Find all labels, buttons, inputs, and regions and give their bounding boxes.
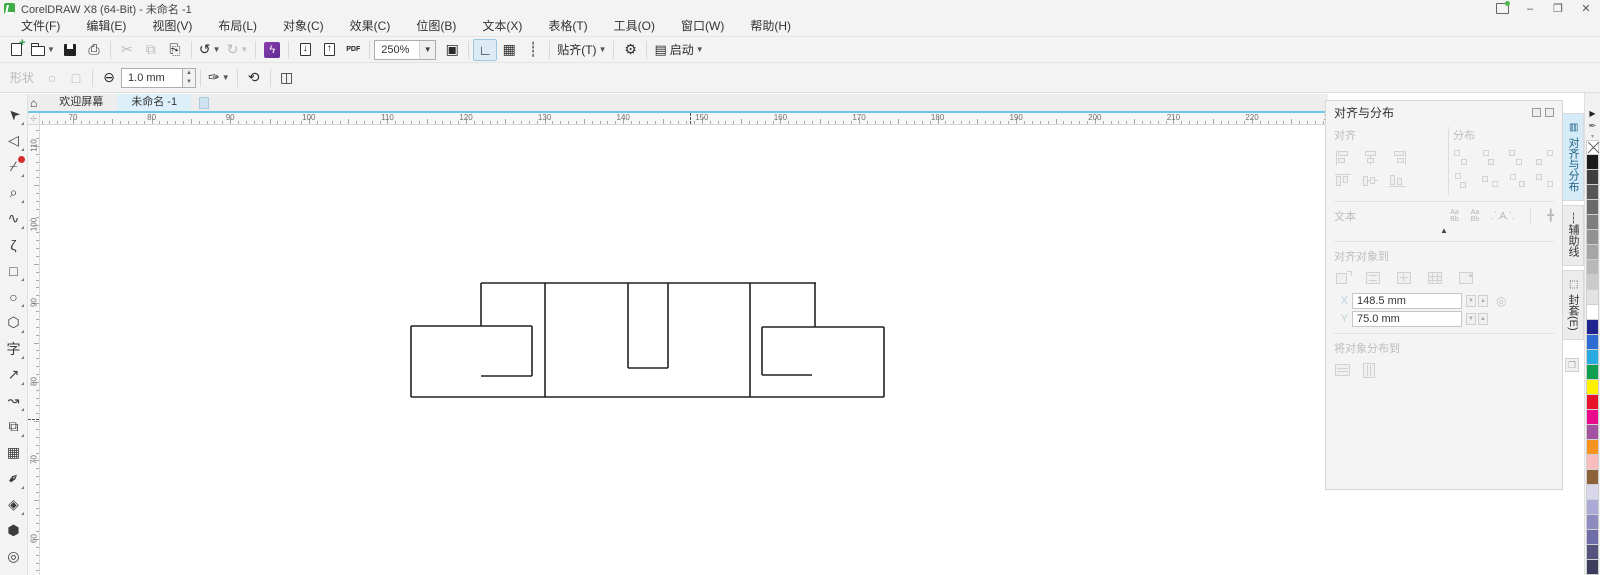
docker-flyout-button[interactable] — [1532, 108, 1541, 117]
align-section-label: 对齐 — [1334, 127, 1444, 143]
align-right-button[interactable] — [1388, 149, 1408, 166]
color-swatch-15[interactable] — [1586, 380, 1599, 395]
color-swatch-19[interactable] — [1586, 440, 1599, 455]
distribute-spacing-v-button[interactable] — [1507, 172, 1527, 189]
distribute-bottom-button[interactable] — [1534, 172, 1554, 189]
v-ruler-number: 80 — [30, 372, 39, 390]
color-swatch-24[interactable] — [1586, 515, 1599, 530]
zoom-level-value: 250% — [375, 44, 419, 56]
paste-button[interactable]: ⎘ — [163, 39, 187, 61]
h-ruler-number: 150 — [695, 113, 708, 122]
redo-button[interactable]: ↻▼ — [224, 39, 252, 61]
window-title: CorelDRAW X8 (64-Bit) - 未命名 -1 — [21, 1, 192, 17]
target-point-icon[interactable]: ◎ — [1496, 294, 1506, 308]
h-ruler-number: 90 — [226, 113, 235, 122]
color-swatch-20[interactable] — [1586, 455, 1599, 470]
menu-item-10[interactable]: 窗口(W) — [668, 17, 737, 36]
rotate-button[interactable]: ⟲ — [242, 67, 266, 89]
color-swatch-26[interactable] — [1586, 545, 1599, 560]
color-swatch-22[interactable] — [1586, 485, 1599, 500]
align-top-button[interactable] — [1334, 172, 1354, 189]
docker-tab-icon: ⬚ — [1568, 279, 1579, 290]
docker-tab-1[interactable]: ┆辅助线 — [1563, 205, 1584, 266]
ellipse-shape-button[interactable]: ○ — [40, 67, 64, 89]
v-ruler-number: 90 — [30, 294, 39, 312]
account-button[interactable] — [1488, 0, 1516, 17]
document-tab-bar: ⌂ 欢迎屏幕 未命名 -1 — [0, 94, 1328, 113]
full-screen-preview-button[interactable]: ▣ — [440, 39, 464, 61]
docker-tab-icon: ┆ — [1570, 212, 1576, 223]
launch-icon: ▤ — [654, 42, 666, 58]
minimize-button[interactable]: – — [1516, 0, 1544, 17]
color-palette: ▶ ✒ ▾ — [1584, 93, 1600, 575]
distribute-spacing-h-button[interactable] — [1507, 149, 1527, 166]
publish-pdf-button[interactable]: PDF — [341, 39, 365, 61]
distribute-objects-to-label: 将对象分布到 — [1334, 340, 1554, 356]
x-spinner[interactable]: ▼▲ — [1466, 295, 1488, 307]
color-swatch-7[interactable] — [1586, 260, 1599, 275]
launch-button[interactable]: ▤启动▼ — [651, 39, 706, 61]
page-center-marker-v — [28, 419, 39, 420]
pick-tool[interactable]: ➤ — [2, 102, 26, 127]
undo-button[interactable]: ↺▼ — [196, 39, 224, 61]
docker-tab-icon: ▤ — [1568, 122, 1579, 133]
align-middle-v-button[interactable] — [1361, 172, 1381, 189]
color-swatch-10[interactable] — [1586, 305, 1599, 320]
import-icon: ↓ — [300, 43, 311, 56]
swatch-no-color[interactable] — [1586, 140, 1599, 155]
color-swatch-18[interactable] — [1586, 425, 1599, 440]
cut-button[interactable]: ✂ — [115, 39, 139, 61]
color-swatch-11[interactable] — [1586, 320, 1599, 335]
shape-label: 形状 — [10, 69, 34, 86]
distribute-right-button[interactable] — [1534, 149, 1554, 166]
color-swatch-17[interactable] — [1586, 410, 1599, 425]
menu-item-1[interactable]: 编辑(E) — [73, 17, 139, 36]
crop-tool[interactable]: ⌿ — [2, 154, 26, 179]
y-position-input[interactable]: 75.0 mm — [1352, 311, 1462, 327]
smart-fill-tool[interactable]: ⬢ — [2, 518, 26, 543]
account-icon — [1496, 3, 1509, 14]
menu-item-8[interactable]: 表格(T) — [535, 17, 600, 36]
h-ruler-number: 140 — [617, 113, 630, 122]
h-ruler-number: 180 — [931, 113, 944, 122]
color-swatch-0[interactable] — [1586, 155, 1599, 170]
align-to-grid-button[interactable] — [1427, 270, 1447, 287]
show-rulers-button[interactable]: ∟ — [473, 39, 497, 61]
interactive-fill-tool[interactable]: ◈ — [2, 492, 26, 517]
ruler-origin-button[interactable]: ⊹ — [28, 113, 40, 125]
show-grid-button[interactable]: ▦ — [497, 39, 521, 61]
align-bottom-button[interactable] — [1388, 172, 1408, 189]
transparency-tool[interactable]: ▦ — [2, 440, 26, 465]
ellipse-tool[interactable]: ○ — [2, 284, 26, 309]
open-folder-icon — [31, 46, 45, 56]
color-swatch-6[interactable] — [1586, 245, 1599, 260]
docker-tab-2[interactable]: ⬚封套(E) — [1563, 270, 1584, 340]
h-ruler-number: 200 — [1088, 113, 1101, 122]
h-ruler-number: 210 — [1167, 113, 1180, 122]
h-ruler-number: 160 — [774, 113, 787, 122]
color-swatch-4[interactable] — [1586, 215, 1599, 230]
color-swatch-16[interactable] — [1586, 395, 1599, 410]
pdf-icon: PDF — [346, 46, 360, 53]
distribute-center-h-button[interactable] — [1480, 149, 1500, 166]
h-ruler-number: 220 — [1245, 113, 1258, 122]
menu-item-4[interactable]: 对象(C) — [270, 17, 337, 36]
align-text-baseline-button[interactable]: AaBb — [1471, 209, 1480, 223]
title-bar: CorelDRAW X8 (64-Bit) - 未命名 -1 – ❐ ✕ — [0, 0, 1600, 17]
open-button[interactable]: ▼ — [28, 39, 58, 61]
v-ruler-number: 100 — [30, 215, 39, 233]
new-document-icon — [11, 43, 22, 56]
docker-close-button[interactable] — [1545, 108, 1554, 117]
color-swatch-12[interactable] — [1586, 335, 1599, 350]
mirror-button[interactable]: ◫ — [275, 67, 299, 89]
distribute-middle-v-button[interactable] — [1480, 172, 1500, 189]
align-to-specified-point-button[interactable] — [1458, 270, 1478, 287]
options-button[interactable]: ⚙ — [618, 39, 642, 61]
docker-title: 对齐与分布 — [1334, 104, 1394, 121]
color-swatch-21[interactable] — [1586, 470, 1599, 485]
h-ruler-number: 120 — [459, 113, 472, 122]
y-spinner[interactable]: ▼▲ — [1466, 313, 1488, 325]
docker-tab-label: 辅助线 — [1565, 224, 1581, 257]
outline-width-value: 1.0 mm — [122, 72, 182, 84]
menu-item-6[interactable]: 位图(B) — [403, 17, 469, 36]
h-ruler-number: 170 — [852, 113, 865, 122]
coreldraw-logo-icon — [4, 3, 15, 14]
align-text-bounding-button[interactable]: ⸫A⸫ — [1491, 213, 1514, 220]
color-swatch-2[interactable] — [1586, 185, 1599, 200]
h-ruler-number: 70 — [69, 113, 78, 122]
h-ruler-number: 100 — [302, 113, 315, 122]
align-to-active-objects-button[interactable] — [1334, 270, 1354, 287]
docker-tab-label: 对齐与分布 — [1565, 137, 1581, 192]
print-button[interactable]: ⎙ — [82, 39, 106, 61]
page-center-marker-h — [690, 113, 691, 124]
snap-to-button[interactable]: 贴齐(T)▼ — [554, 39, 609, 61]
dimension-tool[interactable]: ↗ — [2, 362, 26, 387]
rectangle-tool[interactable]: □ — [2, 258, 26, 283]
export-button[interactable]: ↑ — [317, 39, 341, 61]
connector-tool[interactable]: ↝ — [2, 388, 26, 413]
color-swatch-25[interactable] — [1586, 530, 1599, 545]
standard-toolbar: ▼ ⎙ ✂ ⧉ ⎘ ↺▼ ↻▼ ϟ ↓ ↑ PDF 250% ▼ ▣ ∟ ▦ ┊… — [0, 36, 1600, 62]
home-icon[interactable]: ⌂ — [30, 96, 37, 110]
freehand-tool[interactable]: ∿ — [2, 206, 26, 231]
docker-collapsed-icon[interactable]: ❐ — [1565, 358, 1579, 372]
menu-item-9[interactable]: 工具(O) — [601, 17, 668, 36]
docker-tab-0[interactable]: ▤对齐与分布 — [1563, 113, 1584, 201]
menu-item-2[interactable]: 视图(V) — [139, 17, 205, 36]
toolbox: ➤◁⌿⌕∿ζ□○⬡字↗↝⧉▦✒◈⬢◎ — [0, 94, 28, 575]
menu-item-5[interactable]: 效果(C) — [337, 17, 404, 36]
h-ruler-number: 190 — [1010, 113, 1023, 122]
h-ruler-number: 110 — [381, 113, 394, 122]
x-axis-label: X — [1334, 295, 1348, 307]
align-center-h-button[interactable] — [1361, 149, 1381, 166]
color-swatch-13[interactable] — [1586, 350, 1599, 365]
align-to-page-edge-button[interactable] — [1365, 270, 1385, 287]
docker-collapse-arrow[interactable]: ▲ — [1334, 226, 1554, 235]
color-swatch-27[interactable] — [1586, 560, 1599, 575]
search-content-button[interactable]: ϟ — [260, 39, 284, 61]
tab-welcome-screen[interactable]: 欢迎屏幕 — [45, 94, 117, 111]
align-objects-to-label: 对齐对象到 — [1334, 248, 1554, 264]
content-exchange-icon: ϟ — [264, 42, 280, 58]
copy-button[interactable]: ⧉ — [139, 39, 163, 61]
polygon-tool[interactable]: ⬡ — [2, 310, 26, 335]
h-ruler-number: 130 — [538, 113, 551, 122]
v-ruler-number: 70 — [30, 451, 39, 469]
distribute-to-extent-h-button[interactable] — [1334, 362, 1354, 379]
h-ruler-number: 80 — [147, 113, 156, 122]
drop-shadow-tool[interactable]: ⧉ — [2, 414, 26, 439]
align-distribute-docker: 对齐与分布 对齐 分布 — [1325, 100, 1563, 490]
align-left-button[interactable] — [1334, 149, 1354, 166]
align-text-baseline-first-button[interactable]: AaBb — [1450, 209, 1459, 223]
palette-scroll-arrow-icon[interactable]: ▶ — [1585, 109, 1600, 118]
distribute-left-button[interactable] — [1453, 149, 1473, 166]
distribute-to-extent-v-button[interactable] — [1361, 362, 1381, 379]
snap-to-label: 贴齐(T) — [557, 41, 596, 58]
vertical-ruler[interactable]: 11010090807060 — [28, 125, 40, 575]
artistic-media-tool[interactable]: ζ — [2, 232, 26, 257]
tool-active-badge — [18, 156, 25, 163]
color-swatch-23[interactable] — [1586, 500, 1599, 515]
color-swatch-3[interactable] — [1586, 200, 1599, 215]
zoom-dropdown-icon[interactable]: ▼ — [419, 41, 435, 59]
launch-label: 启动 — [670, 41, 694, 58]
palette-caret-icon[interactable]: ▾ — [1585, 133, 1600, 140]
text-plus-button[interactable]: ╋ — [1547, 213, 1554, 220]
import-button[interactable]: ↓ — [293, 39, 317, 61]
color-swatch-9[interactable] — [1586, 290, 1599, 305]
color-swatch-8[interactable] — [1586, 275, 1599, 290]
new-document-button[interactable] — [4, 39, 28, 61]
v-ruler-number: 60 — [30, 530, 39, 548]
color-swatch-14[interactable] — [1586, 365, 1599, 380]
text-tool[interactable]: 字 — [2, 336, 26, 361]
y-axis-label: Y — [1334, 313, 1348, 325]
zoom-level-combo[interactable]: 250% ▼ — [374, 40, 436, 60]
save-icon — [64, 44, 76, 56]
docker-tab-strip: ▤对齐与分布┆辅助线⬚封套(E)❐ — [1563, 113, 1582, 372]
color-swatch-5[interactable] — [1586, 230, 1599, 245]
shape-tool[interactable]: ◁ — [2, 128, 26, 153]
zoom-tool[interactable]: ⌕ — [2, 180, 26, 205]
v-ruler-number: 110 — [30, 137, 39, 155]
palette-eyedropper-icon[interactable]: ✒ — [1585, 121, 1600, 132]
rectangle-shape-button[interactable]: □ — [64, 67, 88, 89]
distribute-section-label: 分布 — [1453, 127, 1554, 143]
menu-item-0[interactable]: 文件(F) — [8, 17, 73, 36]
x-position-input[interactable]: 148.5 mm — [1352, 293, 1462, 309]
menu-item-3[interactable]: 布局(L) — [205, 17, 270, 36]
outline-width-combo[interactable]: 1.0 mm — [121, 68, 183, 88]
export-icon: ↑ — [324, 43, 335, 56]
save-button[interactable] — [58, 39, 82, 61]
show-guidelines-button[interactable]: ┊ — [521, 39, 545, 61]
menu-bar: 文件(F)编辑(E)视图(V)布局(L)对象(C)效果(C)位图(B)文本(X)… — [0, 17, 1600, 36]
property-bar: 形状 ○ □ ⊖ 1.0 mm ▲▼ ✑▼ ⟲ ◫ — [0, 62, 1600, 93]
tab-document[interactable]: 未命名 -1 — [117, 94, 191, 111]
text-section-label: 文本 — [1334, 208, 1356, 224]
distribute-top-button[interactable] — [1453, 172, 1473, 189]
outline-width-icon: ⊖ — [97, 67, 121, 89]
horizontal-ruler[interactable]: 7080901001101201301401501601701801902002… — [40, 113, 1325, 125]
close-button[interactable]: ✕ — [1572, 0, 1600, 17]
menu-item-11[interactable]: 帮助(H) — [737, 17, 804, 36]
eyedropper-tool[interactable]: ✒ — [2, 466, 26, 491]
align-to-page-center-button[interactable] — [1396, 270, 1416, 287]
outline-pen-button[interactable]: ✑▼ — [205, 67, 233, 89]
restore-button[interactable]: ❐ — [1544, 0, 1572, 17]
outline-tool[interactable]: ◎ — [2, 544, 26, 569]
new-tab-icon[interactable] — [199, 97, 209, 109]
outline-width-spinner[interactable]: ▲▼ — [183, 68, 196, 88]
docker-tab-label: 封套(E) — [1565, 294, 1581, 331]
color-swatch-1[interactable] — [1586, 170, 1599, 185]
menu-item-7[interactable]: 文本(X) — [469, 17, 535, 36]
